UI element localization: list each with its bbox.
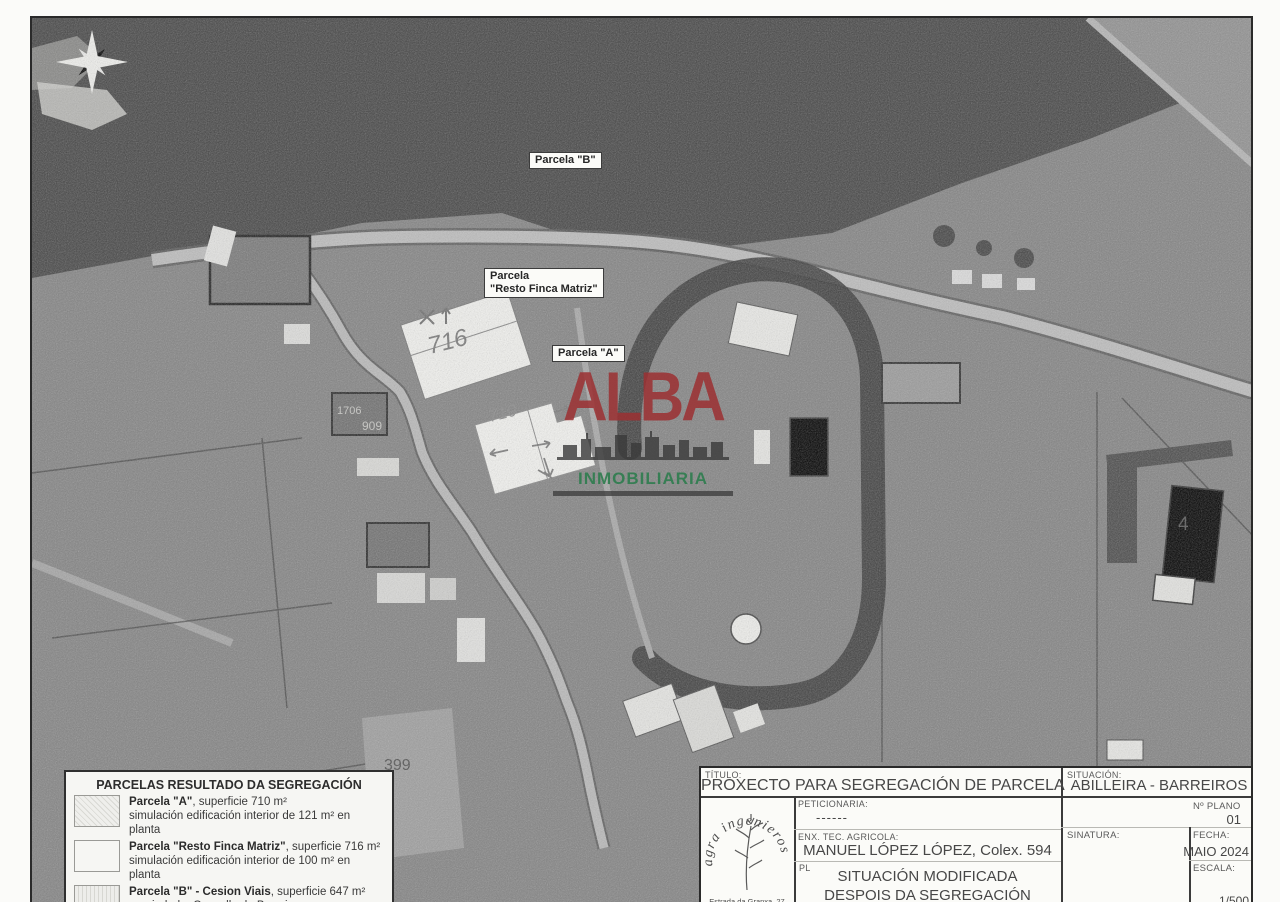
tb-hline-5 [1189, 860, 1253, 861]
label-parcela-b: Parcela "B" [529, 152, 602, 169]
legend-entry-parcela-b: Parcela "B" - Cesion Viais, superficie 6… [74, 885, 384, 902]
label-parcela-a: Parcela "A" [552, 345, 625, 362]
fecha-value: MAIO 2024 [1169, 844, 1249, 859]
legend-entry-parcela-a: Parcela "A", superficie 710 m² simulació… [74, 795, 384, 837]
project-title: PROXECTO PARA SEGREGACIÓN DE PARCELA [701, 777, 1061, 795]
num-plano-label: Nº PLANO [1193, 801, 1241, 812]
escala-value: 1/500 [1177, 894, 1249, 902]
situacion-value: ABILLEIRA - BARREIROS [1061, 777, 1253, 794]
legend-a-sub: simulación edificación interior de 121 m… [129, 809, 384, 837]
legend-title: PARCELAS RESULTADO DA SEGREGACIÓN [74, 778, 384, 792]
tb-hline-3 [794, 861, 1061, 862]
title-block: TÍTULO: PROXECTO PARA SEGREGACIÓN DE PAR… [699, 766, 1253, 902]
legend-a-detail: , superficie 710 m² [192, 796, 287, 808]
num-plano-value: 01 [1161, 812, 1241, 827]
peticionaria-value: ------ [816, 810, 848, 825]
legend-resto-name: Parcela "Resto Finca Matriz" [129, 841, 286, 853]
label-parcela-resto-line2: "Resto Finca Matriz" [490, 283, 598, 296]
fecha-label: FECHA: [1193, 830, 1230, 841]
plano-line1: SITUACIÓN MODIFICADA [794, 868, 1061, 885]
enx-label: ENX. TEC. AGRICOLA: [798, 832, 899, 842]
legend-resto-detail: , superficie 716 m² [286, 841, 381, 853]
label-parcela-resto: Parcela "Resto Finca Matriz" [484, 268, 604, 298]
sinatura-label: SINATURA: [1067, 830, 1120, 841]
legend-resto-sub: simulación edificación interior de 100 m… [129, 854, 384, 882]
legend-entry-resto: Parcela "Resto Finca Matriz", superficie… [74, 840, 384, 882]
legend-box: PARCELAS RESULTADO DA SEGREGACIÓN Parcel… [64, 770, 394, 902]
tb-vline-fecha [1189, 827, 1191, 902]
tb-hline-4 [1061, 827, 1253, 828]
escala-label: ESCALA: [1193, 863, 1235, 874]
legend-b-name: Parcela "B" - Cesion Viais [129, 886, 271, 898]
label-parcela-resto-line1: Parcela [490, 270, 598, 283]
agra-ingenieros-logo: agra ingenieros Estrada da Granxa, 27 [701, 796, 794, 902]
tb-hline-2 [794, 829, 1061, 830]
legend-a-name: Parcela "A" [129, 796, 192, 808]
plan-sheet: 716 710 1706 909 399 4 ALBA [30, 16, 1253, 902]
logo-address: Estrada da Granxa, 27 [709, 897, 784, 902]
enx-value: MANUEL LÓPEZ LÓPEZ, Colex. 594 [794, 842, 1061, 859]
legend-swatch-resto [74, 840, 120, 872]
legend-swatch-a [74, 795, 120, 827]
legend-b-detail: , superficie 647 m² [271, 886, 366, 898]
legend-swatch-b [74, 885, 120, 902]
plano-line2: DESPOIS DA SEGREGACIÓN [794, 887, 1061, 902]
peticionaria-label: PETICIONARIA: [798, 799, 868, 809]
